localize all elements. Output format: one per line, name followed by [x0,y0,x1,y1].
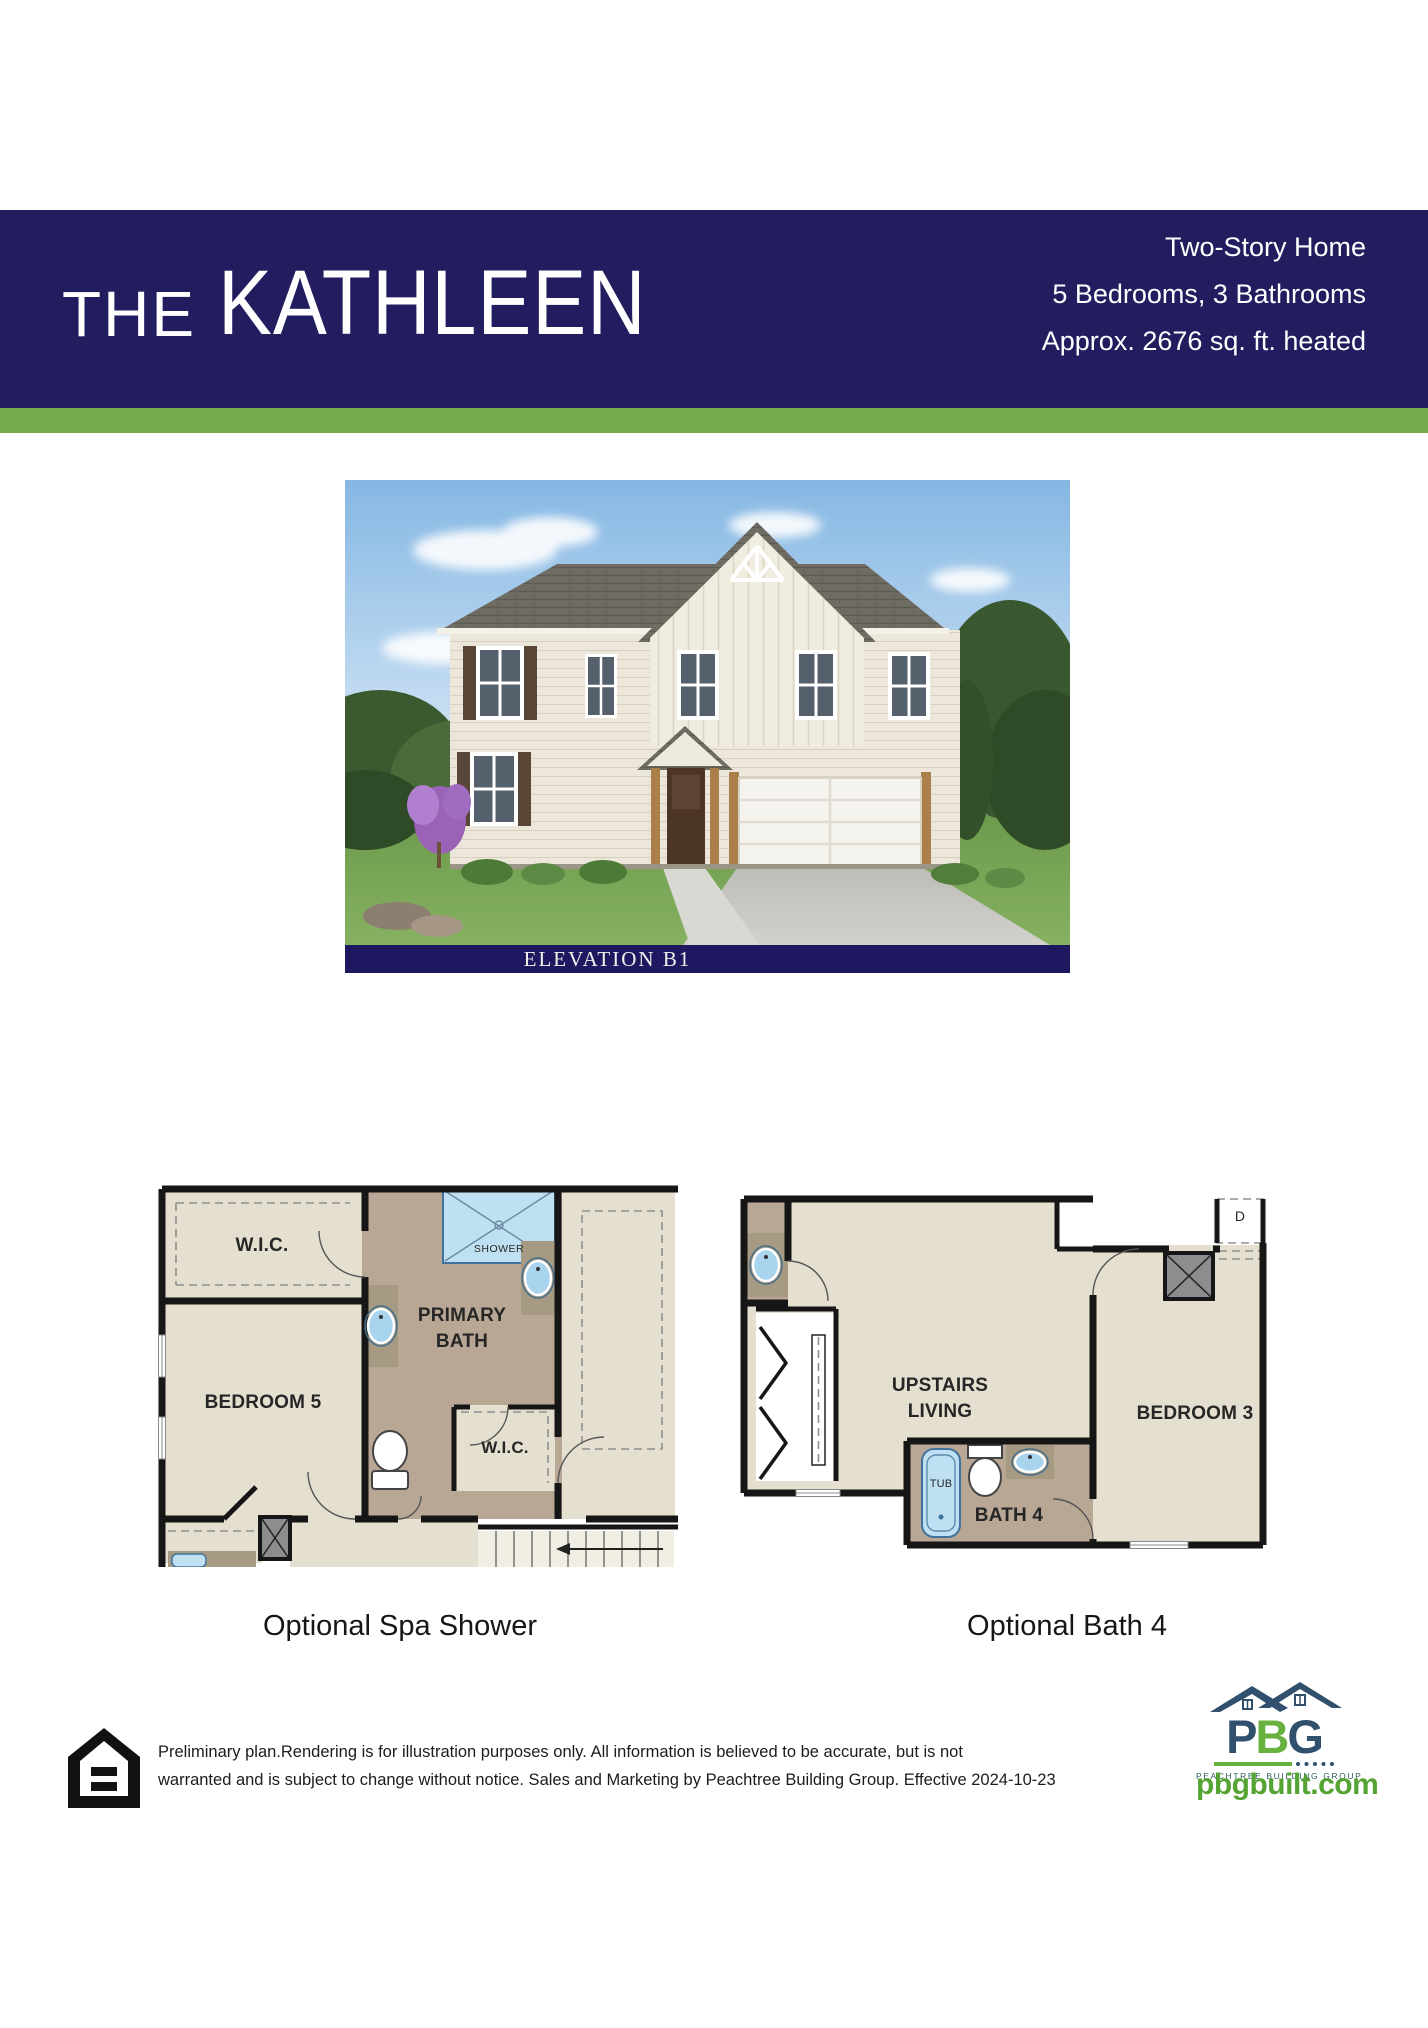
home-stats: Two-Story Home 5 Bedrooms, 3 Bathrooms A… [1042,224,1366,365]
toilet-icon [372,1431,408,1489]
caption-spa-shower: Optional Spa Shower [190,1610,610,1643]
label-upstairs-living: UPSTAIRS LIVING [875,1373,1005,1424]
elevation-rendering: ELEVATION B1 [345,480,1070,973]
stat-story: Two-Story Home [1042,224,1366,271]
pbg-rooflines-icon [1196,1676,1352,1714]
equal-housing-icon [66,1726,142,1813]
label-wic-bath: W.I.C. [464,1437,546,1460]
label-bedroom3: BEDROOM 3 [1115,1401,1275,1427]
label-bedroom5: BEDROOM 5 [183,1390,343,1416]
caption-bath4: Optional Bath 4 [857,1610,1277,1643]
disclaimer-line1: Preliminary plan.Rendering is for illust… [158,1738,1198,1766]
label-wic-top: W.I.C. [202,1233,322,1259]
stat-beds-baths: 5 Bedrooms, 3 Bathrooms [1042,271,1366,318]
pbg-rule [1196,1762,1352,1766]
disclaimer: Preliminary plan.Rendering is for illust… [158,1738,1198,1794]
floorplan-spa-shower: W.I.C. BEDROOM 5 PRIMARY BATH SHOWER W.I… [158,1185,678,1567]
pbg-letter-p: P [1226,1710,1255,1763]
green-accent-stripe [0,408,1428,433]
pbg-website: pbgbuilt.com [1196,1768,1352,1802]
label-dryer: D [1217,1207,1263,1226]
pbg-logo: PBG PEACHTREE BUILDING GROUP [1196,1676,1352,1781]
page-title: THE KATHLEEN [62,240,705,340]
title-prefix: THE [62,288,196,340]
house-illustration [345,480,1070,945]
label-primary-bath: PRIMARY BATH [398,1303,526,1354]
elevation-label-bar: ELEVATION B1 [345,945,1070,973]
pbg-letter-b: B [1255,1710,1287,1763]
label-tub: TUB [922,1477,960,1492]
label-bath4: BATH 4 [964,1503,1054,1529]
elevation-label: ELEVATION B1 [524,947,692,972]
pbg-letters: PBG [1196,1713,1352,1760]
disclaimer-line2: warranted and is subject to change witho… [158,1766,1198,1794]
plan-name: KATHLEEN [218,268,646,340]
pbg-letter-g: G [1287,1710,1322,1763]
floorplan-bath4: UPSTAIRS LIVING BEDROOM 3 BATH 4 TUB D [740,1195,1267,1553]
label-shower: SHOWER [443,1242,555,1256]
stat-sqft: Approx. 2676 sq. ft. heated [1042,318,1366,365]
flyer-page: THE KATHLEEN Two-Story Home 5 Bedrooms, … [0,0,1428,2028]
